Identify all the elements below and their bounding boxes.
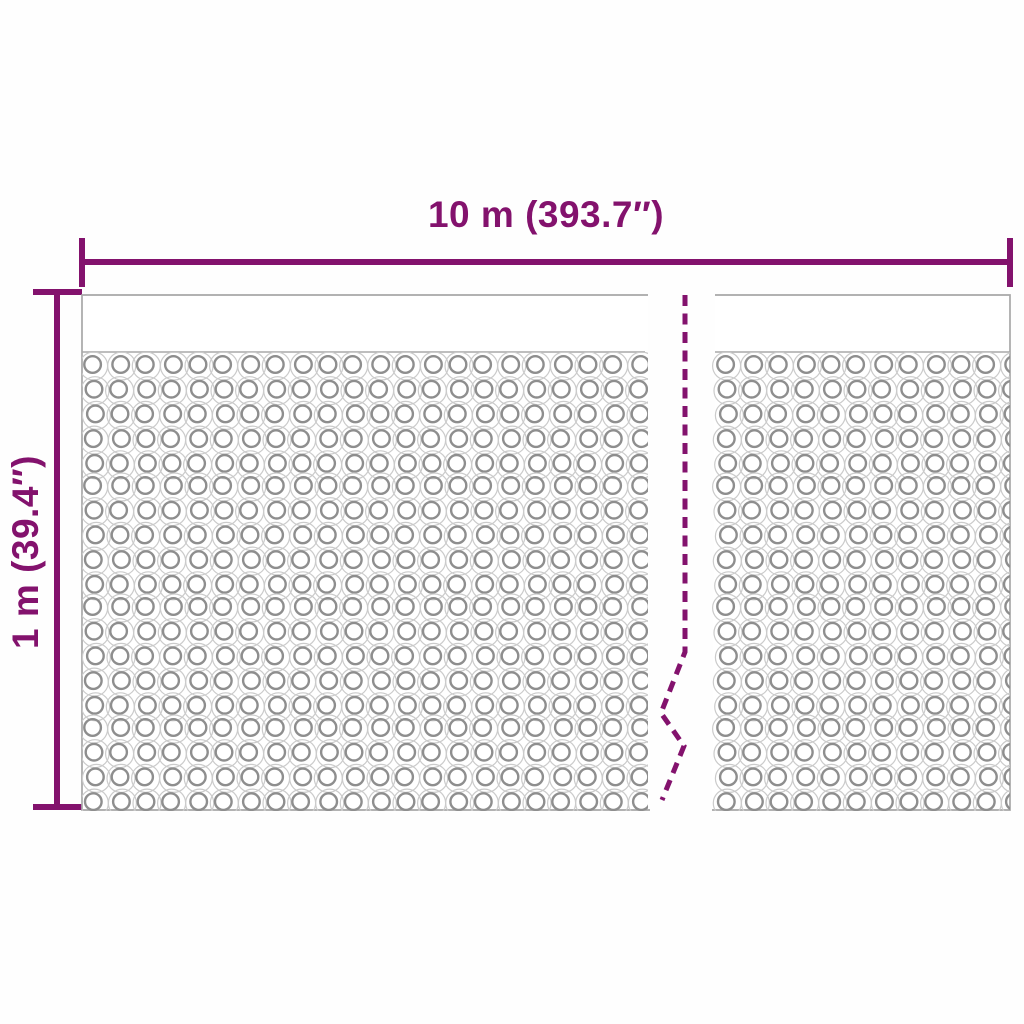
width-dimension-line bbox=[82, 238, 1010, 287]
break-zigzag-dashed-line bbox=[661, 295, 685, 800]
cover-left-panel bbox=[80, 295, 657, 817]
product-dimension-diagram: 10 m (393.7″) 1 m (39.4″) bbox=[0, 0, 1024, 1024]
cover-right-panel bbox=[712, 295, 1024, 817]
height-dimension-line bbox=[33, 292, 82, 807]
bubble-foil-illustration bbox=[0, 0, 1024, 1024]
